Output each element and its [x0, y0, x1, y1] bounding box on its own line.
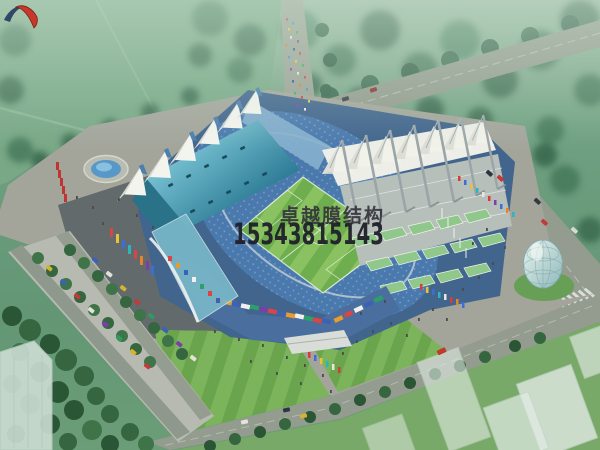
fountain: [84, 156, 128, 183]
pale-tower: [0, 341, 52, 450]
haze-overlay: [0, 0, 600, 150]
scene-illustration: [0, 0, 600, 450]
stadium-rendering: 卓越膜结构 15343815143: [0, 0, 600, 450]
